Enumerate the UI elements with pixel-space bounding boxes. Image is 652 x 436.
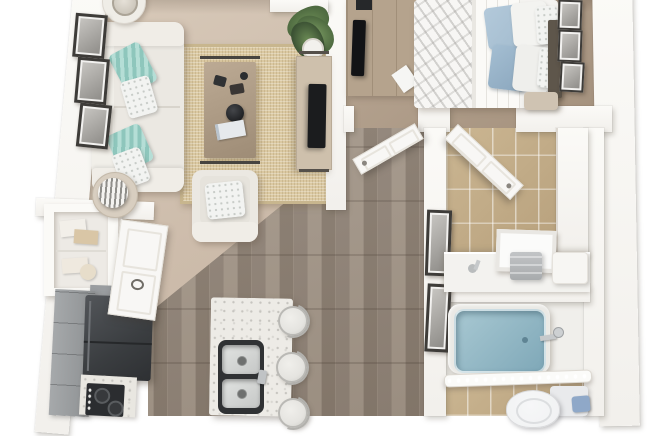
- towel-stack: [510, 252, 542, 280]
- gallery-frame-1: [72, 13, 108, 60]
- sink-basin-1: [222, 345, 260, 374]
- tub-valve: [553, 327, 564, 338]
- bathtub: [448, 304, 550, 374]
- wall-bedroom-hall-a: [344, 106, 354, 132]
- console-leg-bar-top: [299, 51, 329, 54]
- bathtub-basin: [454, 309, 546, 373]
- burner-1: [94, 387, 111, 404]
- console-leg-bar-bottom: [299, 169, 329, 172]
- toilet-seat-ring: [516, 398, 552, 424]
- gallery-frame-3: [76, 102, 112, 149]
- island-sink: [218, 340, 264, 414]
- frame-art: [79, 62, 104, 100]
- door-handle: [130, 278, 144, 291]
- bath-accessory: [571, 395, 590, 413]
- vanity-faucet: [468, 258, 486, 274]
- shelf-item-jar: [80, 264, 96, 280]
- faucet-spout: [473, 260, 480, 271]
- bar-stool-1: [278, 306, 308, 336]
- storage-nook: [44, 204, 122, 296]
- burner-2: [107, 400, 124, 417]
- duvet-floral: [414, 0, 474, 108]
- tv-bedroom: [351, 20, 366, 76]
- cooktop-knobs: [86, 387, 92, 411]
- fridge-divider: [84, 341, 152, 345]
- cooktop: [85, 383, 125, 417]
- door-knob: [505, 182, 512, 189]
- dresser-item: [356, 0, 372, 10]
- decor-cup: [240, 72, 248, 80]
- bedroom-frame-1: [557, 0, 582, 30]
- armchair: [192, 170, 258, 242]
- storage-box: [552, 252, 588, 284]
- gallery-frame-2: [74, 57, 110, 106]
- bathtub-faucet: [540, 326, 564, 348]
- linen-closet: [556, 128, 588, 256]
- frame-art: [429, 289, 446, 348]
- shelf-divider: [56, 250, 106, 252]
- bedroom-frame-3: [559, 61, 585, 92]
- frame-art: [562, 4, 579, 27]
- sphere-lamp: [98, 178, 128, 208]
- bed-bench: [524, 92, 558, 110]
- armchair-pillow: [204, 180, 246, 220]
- sink-drain: [237, 356, 247, 366]
- frame-art: [81, 108, 106, 144]
- bar-stool-3: [278, 398, 308, 428]
- frame-art: [562, 34, 579, 59]
- fridge-handle: [87, 301, 91, 371]
- coffee-table-leg-bar-top: [200, 56, 260, 59]
- door-knob: [361, 160, 368, 167]
- sink-drain: [237, 389, 247, 399]
- tv-living: [307, 84, 326, 148]
- frame-art: [563, 66, 580, 89]
- frame-art: [78, 18, 103, 54]
- bedroom-frame-2: [557, 30, 582, 63]
- sink-basin-2: [222, 379, 260, 408]
- dresser-divider-1: [372, 0, 373, 96]
- floor-plan-render: [0, 0, 652, 416]
- coffee-table-leg-bar-bottom: [200, 161, 260, 164]
- shelf-item-basket: [74, 229, 99, 245]
- toilet-bowl: [506, 390, 560, 428]
- armchair-back: [192, 222, 258, 242]
- tub-drain: [522, 337, 528, 343]
- bar-stool-2: [276, 352, 307, 383]
